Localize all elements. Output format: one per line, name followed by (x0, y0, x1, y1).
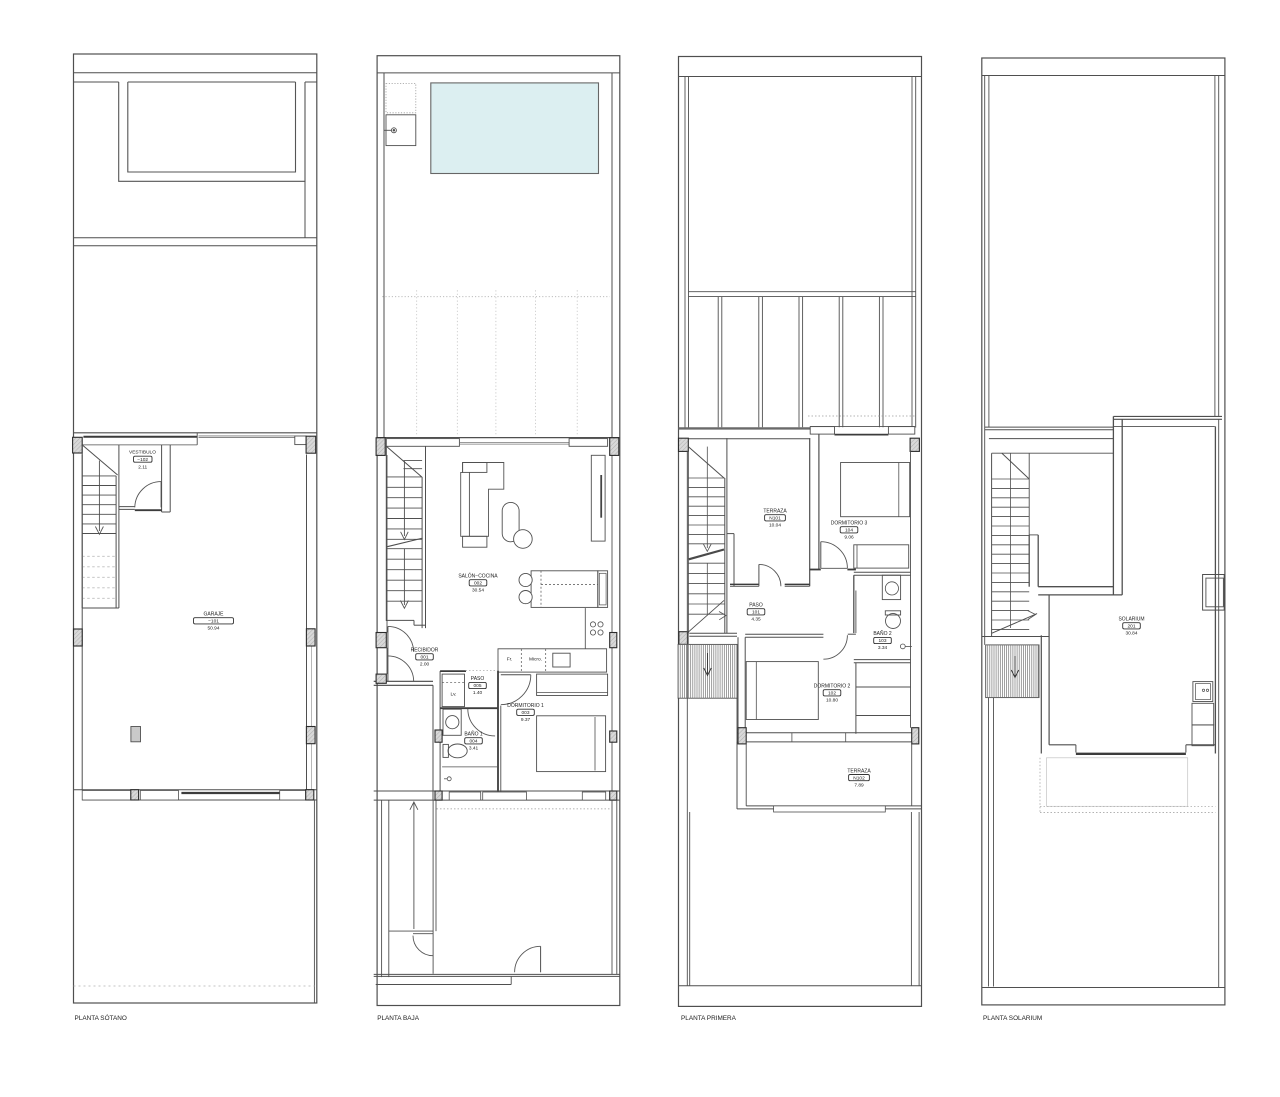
svg-text:TERRAZA: TERRAZA (763, 509, 787, 515)
svg-text:003: 003 (521, 710, 529, 716)
svg-text:N102: N102 (853, 775, 865, 781)
svg-text:SALÓN−COCINA: SALÓN−COCINA (458, 573, 498, 580)
svg-text:9.06: 9.06 (844, 535, 854, 541)
svg-text:Lv.: Lv. (450, 692, 456, 698)
svg-text:DORMITORIO 1: DORMITORIO 1 (507, 703, 544, 709)
svg-text:Micro.: Micro. (529, 657, 542, 663)
svg-text:BAÑO 1: BAÑO 1 (464, 731, 483, 738)
svg-text:30.54: 30.54 (472, 588, 484, 594)
svg-text:PLANTA BAJA: PLANTA BAJA (377, 1015, 420, 1022)
svg-text:RECIBIDOR: RECIBIDOR (411, 648, 439, 654)
svg-text:001: 001 (420, 655, 428, 661)
svg-text:TERRAZA: TERRAZA (847, 768, 871, 774)
svg-text:PASO: PASO (471, 676, 485, 682)
svg-text:DORMITORIO 3: DORMITORIO 3 (831, 521, 868, 527)
svg-text:VESTIBULO: VESTIBULO (129, 450, 156, 456)
svg-text:2.00: 2.00 (420, 662, 430, 668)
svg-text:50.94: 50.94 (207, 626, 219, 632)
svg-text:004: 004 (469, 739, 477, 745)
svg-text:3.41: 3.41 (469, 746, 479, 752)
svg-text:SOLARIUM: SOLARIUM (1118, 617, 1144, 623)
svg-text:104: 104 (845, 528, 853, 534)
svg-text:102: 102 (828, 691, 836, 697)
svg-text:7.89: 7.89 (854, 782, 864, 788)
svg-text:1.40: 1.40 (473, 690, 483, 696)
svg-text:Fr.: Fr. (507, 657, 513, 663)
svg-text:9.37: 9.37 (521, 717, 531, 723)
svg-text:103: 103 (878, 638, 886, 644)
svg-text:GARAJE: GARAJE (203, 612, 224, 618)
svg-text:10.80: 10.80 (826, 698, 838, 704)
svg-text:−102: −102 (137, 457, 148, 463)
svg-text:3.34: 3.34 (878, 645, 888, 651)
svg-text:PLANTA PRIMERA: PLANTA PRIMERA (681, 1015, 737, 1022)
svg-text:BAÑO 2: BAÑO 2 (873, 630, 892, 637)
svg-text:005: 005 (473, 683, 481, 689)
svg-text:4.35: 4.35 (751, 617, 761, 623)
svg-text:101: 101 (752, 610, 760, 616)
svg-text:N101: N101 (769, 516, 781, 522)
svg-text:10.04: 10.04 (769, 523, 781, 529)
svg-text:−101: −101 (208, 619, 219, 625)
svg-text:2.11: 2.11 (138, 465, 147, 471)
svg-text:PASO: PASO (749, 603, 763, 609)
svg-text:002: 002 (474, 581, 482, 587)
svg-text:30.84: 30.84 (1125, 631, 1137, 637)
svg-text:201: 201 (1127, 624, 1135, 630)
svg-text:PLANTA SÓTANO: PLANTA SÓTANO (75, 1013, 127, 1022)
svg-text:PLANTA SOLARIUM: PLANTA SOLARIUM (983, 1015, 1042, 1022)
svg-text:DORMITORIO 2: DORMITORIO 2 (814, 684, 851, 690)
